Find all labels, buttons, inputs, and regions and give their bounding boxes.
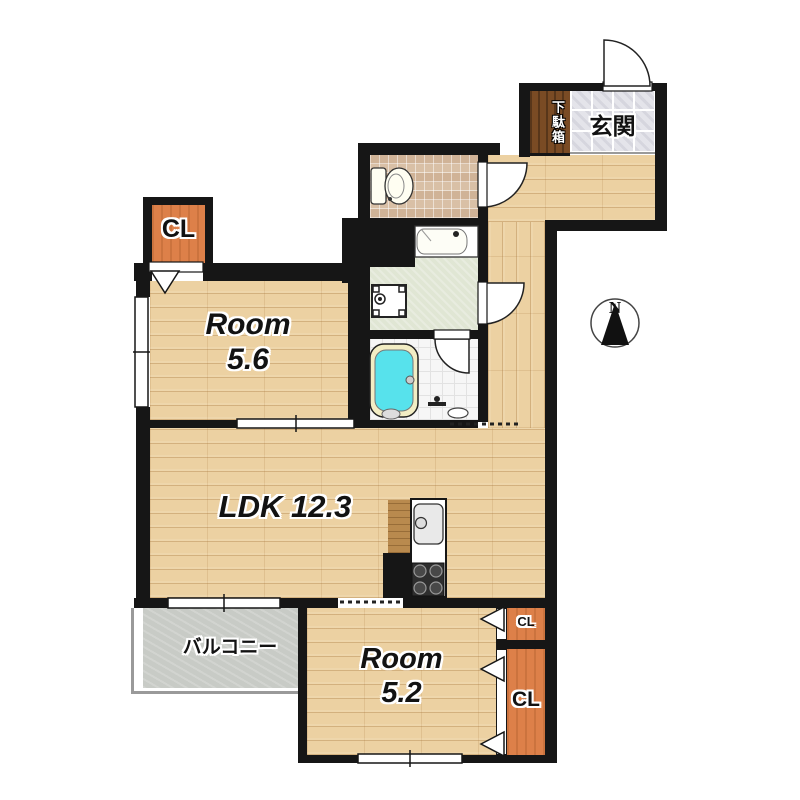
- open-boundary-ldk-room-lower: [338, 599, 403, 608]
- washroom-door: [478, 282, 524, 324]
- toilet-fixture: [371, 168, 413, 204]
- ldk-label: LDK 12.3: [170, 489, 400, 525]
- room-upper-label: Room 5.6: [150, 307, 346, 377]
- room-upper-area: 5.6: [150, 342, 346, 377]
- closet-upper-door-marker: [149, 262, 203, 293]
- bathroom-door: [434, 330, 470, 373]
- shower-faucet: [428, 396, 446, 406]
- sliding-door-room-upper: [237, 415, 354, 432]
- compass-north-label: N: [609, 298, 622, 317]
- bathtub: [370, 344, 418, 419]
- washbasin-vanity: [415, 226, 478, 257]
- room-lower-label: Room 5.2: [307, 642, 496, 710]
- shoe-cabinet-label: 下駄箱: [535, 93, 565, 151]
- balcony-label: バルコニー: [160, 632, 300, 659]
- floorplan-canvas: N Room 5.6 LDK 12.3 Room 5.2 CL CL CL 玄関…: [0, 0, 800, 800]
- washing-machine-pan: [372, 285, 406, 317]
- bath-stool: [448, 408, 468, 418]
- room-upper-name: Room: [150, 307, 346, 342]
- closet-upper-label: CL: [152, 215, 205, 244]
- kitchen-stove: [412, 563, 444, 596]
- window-room-lower: [358, 750, 462, 767]
- window-balcony: [168, 594, 280, 612]
- kitchen-sink: [414, 504, 443, 544]
- room-lower-name: Room: [307, 642, 496, 676]
- closet-small-door-marker: [481, 607, 504, 631]
- room-lower-area: 5.2: [307, 676, 496, 710]
- entrance-label: 玄関: [572, 107, 653, 141]
- window-room-upper-left: [133, 297, 150, 407]
- closet-large-label: CL: [507, 688, 545, 712]
- compass: N: [591, 298, 639, 347]
- entrance-door: [603, 40, 652, 91]
- toilet-door: [478, 162, 527, 207]
- closet-small-label: CL: [507, 614, 545, 629]
